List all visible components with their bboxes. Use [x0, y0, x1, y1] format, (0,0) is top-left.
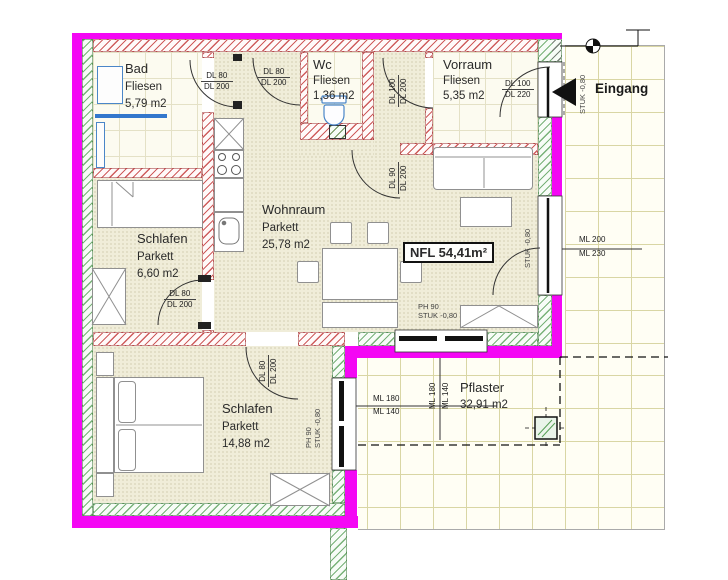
bad-area: 5,79 m2	[125, 98, 167, 110]
wall-kitchen-vertical	[202, 112, 214, 280]
note-schlafen-ph: PH 90	[304, 409, 313, 448]
dim-entrance-door: DL 100 DL 220	[502, 79, 534, 100]
dim-wc-door: DL 80 DL 200	[258, 67, 290, 88]
dim-wc-door-width: DL 80	[258, 67, 290, 78]
pillow-2	[118, 429, 136, 471]
paving-terrace	[358, 353, 665, 530]
kitchen-stove	[214, 150, 244, 178]
bad-shelf	[95, 114, 167, 118]
wardrobe-large	[270, 473, 330, 506]
wall-wohnraum-bottom-green-b	[487, 332, 538, 346]
wall-bedroom-right-green-a	[332, 346, 345, 378]
vorraum-area: 5,35 m2	[443, 90, 492, 102]
bad-label: Bad Fliesen 5,79 m2	[125, 62, 167, 110]
note-wohnraum-window: PH 90 STUK -0,80	[418, 302, 457, 320]
note-entrance-stuk: STUK -0,80	[578, 75, 587, 114]
wardrobe-small	[92, 268, 126, 325]
note-wohnraum-ph: PH 90	[418, 302, 457, 311]
dim-wohnraum-window-top: ML 180	[428, 380, 438, 412]
bad-name: Bad	[125, 62, 167, 76]
schlafen-klein-area: 6,60 m2	[137, 268, 188, 280]
wall-bedroom-divider-b	[298, 332, 345, 346]
bed-single	[97, 180, 203, 228]
bad-radiator	[96, 122, 105, 168]
wall-right-outline-c	[552, 295, 562, 358]
pillow-1	[118, 381, 136, 423]
dim-schlafen-window-top: ML 180	[370, 394, 402, 404]
dining-bench	[322, 302, 398, 328]
wc-wall-column	[329, 125, 346, 139]
coffee-table	[460, 197, 512, 227]
vorraum-name: Vorraum	[443, 58, 492, 72]
nfl-total-badge: NFL 54,41m²	[403, 242, 494, 263]
bed-double-headboard	[96, 377, 114, 473]
sofa	[433, 147, 533, 190]
note-schlafen-window: PH 90 STUK -0,80	[304, 409, 322, 448]
wall-bad-schlafen-divider	[93, 168, 202, 178]
schlafen-klein-label: Schlafen Parkett 6,60 m2	[137, 232, 188, 280]
wall-topright-green	[538, 39, 562, 62]
nightstand-bottom	[96, 473, 114, 497]
note-terrace-door-stuk: STUK -0,80	[523, 229, 532, 268]
dim-vorraum-door: DL 100 DL 200	[388, 76, 409, 108]
wall-kitchen-stub-top	[202, 52, 214, 58]
dim-bad-door: DL 80 DL 200	[201, 71, 233, 92]
wohnraum-floor-strip	[300, 140, 374, 155]
dim-vorraum-door-height: DL 200	[399, 76, 409, 108]
wall-bedroom-divider-a	[93, 332, 246, 346]
dim-schlafen-klein-door: DL 80 DL 200	[164, 289, 196, 310]
dim-entrance-door-height: DL 220	[502, 90, 534, 100]
nightstand-top	[96, 352, 114, 376]
dining-chair-4	[400, 261, 422, 283]
dim-wohnraum-window: ML 180 ML 140	[428, 380, 451, 412]
dining-chair-3	[297, 261, 319, 283]
sideboard	[460, 305, 538, 328]
dim-schlafen-window-bottom: ML 140	[370, 407, 402, 417]
dim-wohnraum-door-height: DL 200	[399, 163, 409, 195]
dim-terrace-door-bottom: ML 230	[576, 249, 608, 259]
dim-wc-door-height: DL 200	[258, 78, 290, 88]
note-schlafen-stuk: STUK -0,80	[313, 409, 322, 448]
wc-label: Wc Fliesen 1,36 m2	[313, 58, 355, 102]
dim-schlafen-gross-door: DL 80 DL 200	[258, 356, 279, 388]
wc-area: 1,36 m2	[313, 90, 355, 102]
dim-bad-door-width: DL 80	[201, 71, 233, 82]
pflaster-label: Pflaster 32,91 m2	[460, 381, 508, 411]
kitchen-counter	[214, 178, 244, 212]
wall-nook-south-stub	[400, 143, 433, 155]
schlafen-gross-name: Schlafen	[222, 402, 273, 416]
floor-plan: Bad Fliesen 5,79 m2 Wc Fliesen 1,36 m2 V…	[0, 0, 728, 580]
vorraum-label: Vorraum Fliesen 5,35 m2	[443, 58, 492, 102]
dim-schlafen-window: ML 180 ML 140	[370, 394, 402, 417]
dim-schlafen-klein-door-height: DL 200	[164, 300, 196, 310]
kitchen-sink-unit	[214, 212, 244, 252]
schlafen-klein-finish: Parkett	[137, 251, 188, 263]
kitchen-fridge	[214, 118, 244, 150]
dining-chair-1	[330, 222, 352, 244]
dim-vorraum-door-width: DL 100	[388, 76, 399, 108]
wall-top-red	[93, 39, 538, 52]
schlafen-gross-area: 14,88 m2	[222, 438, 273, 450]
wohnraum-label: Wohnraum Parkett 25,78 m2	[262, 203, 325, 251]
wall-left-outline	[72, 39, 82, 528]
dim-entrance-door-width: DL 100	[502, 79, 534, 90]
exterior-pillar	[330, 528, 347, 580]
note-wohnraum-stuk: STUK -0,80	[418, 311, 457, 320]
schlafen-gross-label: Schlafen Parkett 14,88 m2	[222, 402, 273, 450]
wall-wohnraum-bottom-green-a	[358, 332, 395, 346]
schlafen-klein-name: Schlafen	[137, 232, 188, 246]
wall-wohnraum-bottom-outline	[345, 346, 562, 358]
wall-wc-right	[362, 52, 374, 140]
pflaster-area: 32,91 m2	[460, 399, 508, 411]
wall-bedroom-right-green-b	[332, 470, 345, 503]
dining-table	[322, 248, 398, 300]
vorraum-finish: Fliesen	[443, 75, 492, 87]
wall-bottom-outline	[72, 516, 358, 528]
dim-schlafen-klein-door-width: DL 80	[164, 289, 196, 300]
wall-bedroom-right-outline-b	[345, 470, 357, 516]
wohnraum-name: Wohnraum	[262, 203, 325, 217]
bad-washbasin	[97, 66, 123, 104]
dim-bad-door-height: DL 200	[201, 82, 233, 92]
wc-name: Wc	[313, 58, 355, 72]
dining-chair-2	[367, 222, 389, 244]
bad-finish: Fliesen	[125, 81, 167, 93]
dim-wohnraum-door-width: DL 90	[388, 163, 399, 195]
wall-right-outline-b	[552, 117, 562, 196]
dim-wohnraum-door: DL 90 DL 200	[388, 163, 409, 195]
wall-right-green-b	[538, 295, 552, 346]
wohnraum-area: 25,78 m2	[262, 239, 325, 251]
wall-right-green-a	[538, 117, 552, 196]
dim-schlafen-gross-door-height: DL 200	[269, 356, 279, 388]
dim-wohnraum-window-bottom: ML 140	[441, 380, 451, 412]
dim-schlafen-gross-door-width: DL 80	[258, 356, 269, 388]
dim-terrace-door: ML 200 ML 230	[576, 235, 608, 259]
eingang-label: Eingang	[595, 81, 648, 96]
pflaster-name: Pflaster	[460, 381, 508, 395]
wohnraum-finish: Parkett	[262, 222, 325, 234]
dim-terrace-door-top: ML 200	[576, 235, 608, 245]
wall-wc-left	[300, 52, 308, 123]
wall-vorraum-stub-top	[425, 52, 433, 58]
schlafen-gross-finish: Parkett	[222, 421, 273, 433]
wc-finish: Fliesen	[313, 75, 355, 87]
